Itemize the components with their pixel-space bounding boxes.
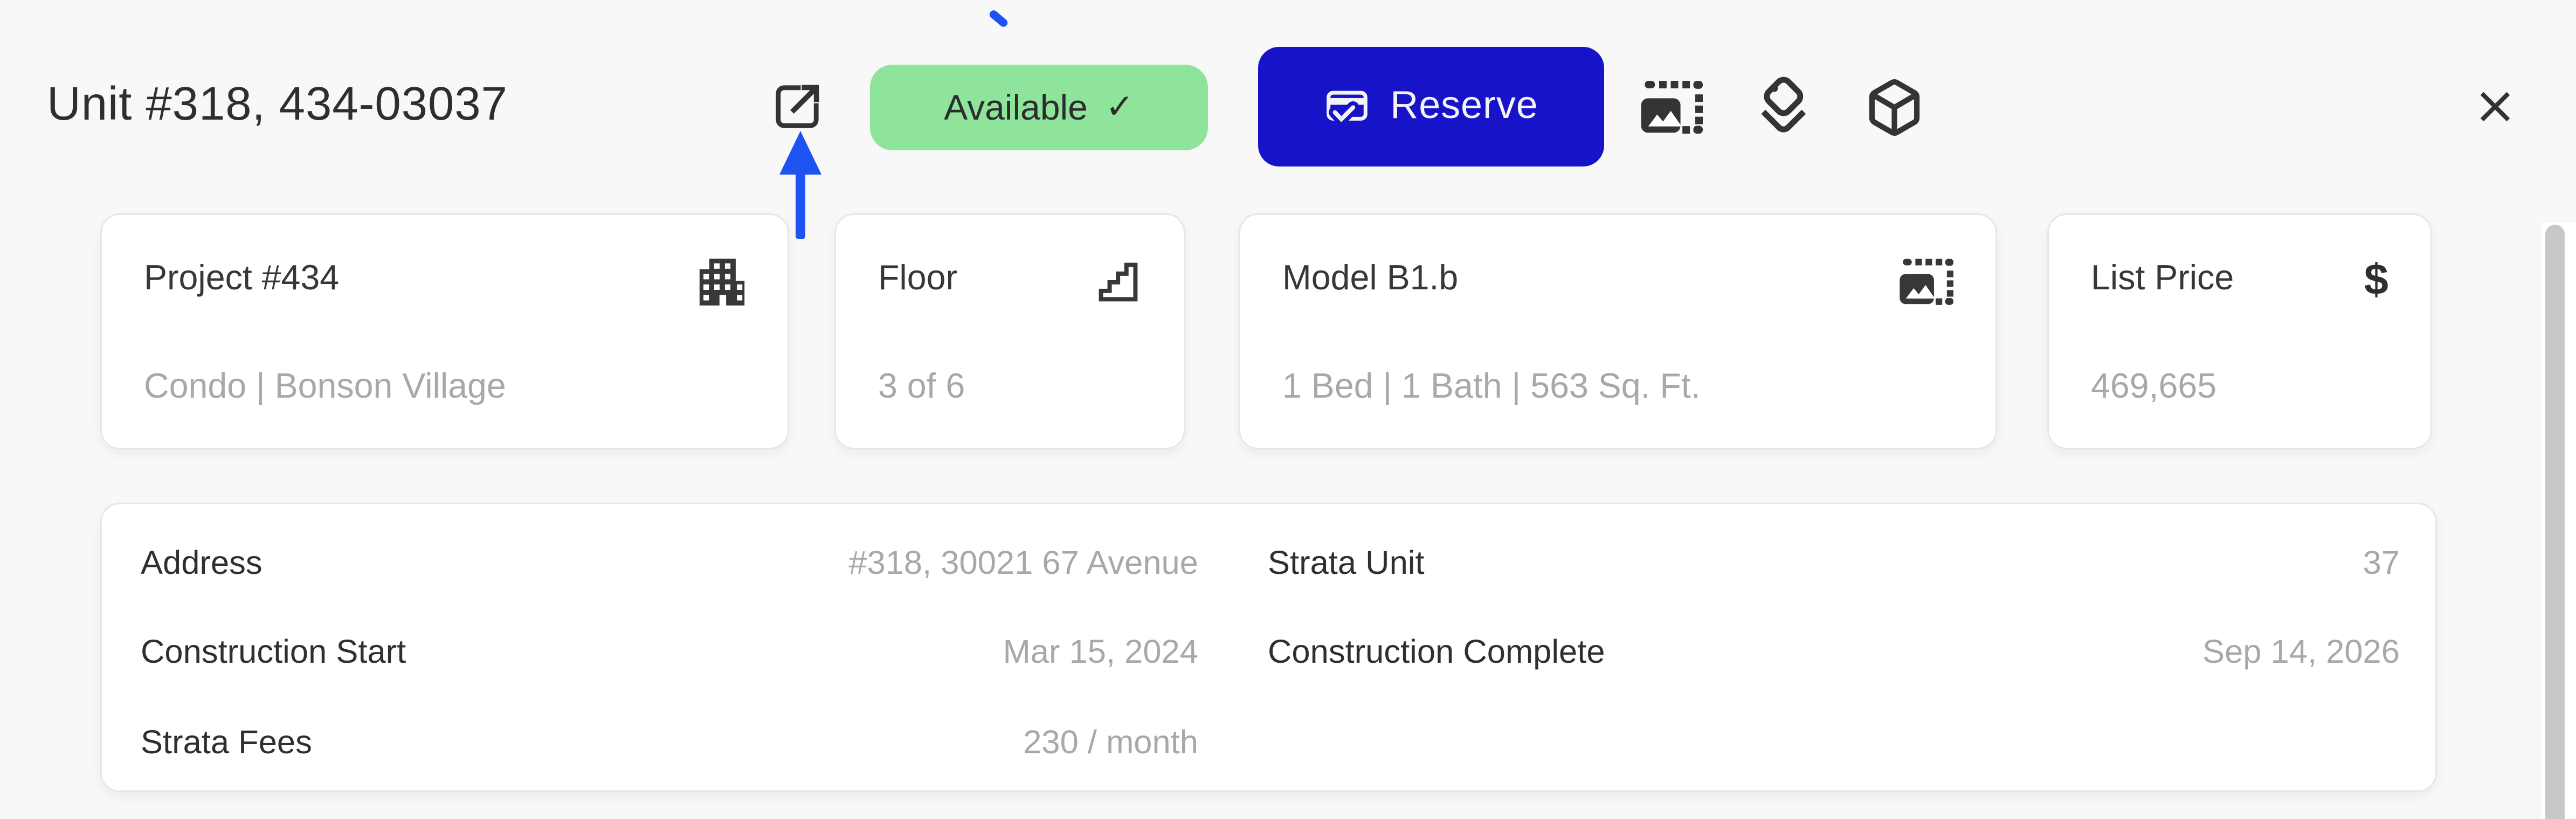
project-card: Project #434 Condo | Bonso	[100, 213, 789, 449]
detail-label: Construction Complete	[1268, 634, 1605, 673]
reserve-button-label: Reserve	[1390, 84, 1538, 129]
detail-label: Strata Unit	[1268, 544, 1425, 583]
details-left-column: Address #318, 30021 67 Avenue Constructi…	[141, 519, 1198, 788]
annotation-dash	[988, 9, 1010, 29]
detail-row-construction-start: Construction Start Mar 15, 2024	[141, 609, 1198, 699]
detail-value: 37	[2363, 544, 2400, 583]
reservation-check-icon	[1324, 84, 1369, 129]
detail-label: Address	[141, 544, 263, 583]
detail-row-construction-complete: Construction Complete Sep 14, 2026	[1268, 609, 2400, 699]
close-icon[interactable]	[2474, 86, 2516, 128]
tags-icon[interactable]	[1750, 74, 1814, 139]
status-badge-label: Available	[944, 87, 1088, 129]
dollar-icon: $	[2364, 259, 2388, 301]
model-card: Model B1.b 1 Bed | 1 Bath |	[1239, 213, 1997, 449]
model-card-subtitle: 1 Bed | 1 Bath | 563 Sq. Ft.	[1282, 367, 1953, 407]
detail-value: Sep 14, 2026	[2202, 634, 2400, 673]
unit-details-card: Address #318, 30021 67 Avenue Constructi…	[100, 503, 2437, 792]
stairs-icon	[1095, 259, 1142, 306]
detail-row-strata-unit: Strata Unit 37	[1268, 519, 2400, 609]
list-price-card-title: List Price	[2091, 259, 2234, 299]
detail-label: Strata Fees	[141, 724, 312, 762]
project-card-title: Project #434	[144, 259, 339, 299]
detail-value: Mar 15, 2024	[1003, 634, 1198, 673]
floor-card: Floor 3 of 6	[834, 213, 1185, 449]
unit-detail-panel: Unit #318, 434-03037 Available ✓ Reserve	[0, 0, 2576, 819]
list-price-card-subtitle: 469,665	[2091, 367, 2388, 407]
details-right-column: Strata Unit 37 Construction Complete Sep…	[1268, 519, 2400, 788]
project-card-subtitle: Condo | Bonson Village	[144, 367, 745, 407]
detail-row-strata-fees: Strata Fees 230 / month	[141, 698, 1198, 788]
floor-card-subtitle: 3 of 6	[878, 367, 1142, 407]
scrollbar-thumb[interactable]	[2545, 225, 2565, 819]
floor-card-title: Floor	[878, 259, 957, 299]
floorplan-image-icon	[1898, 259, 1953, 306]
detail-row-address: Address #318, 30021 67 Avenue	[141, 519, 1198, 609]
list-price-card: List Price $ 469,665	[2047, 213, 2432, 449]
status-badge: Available ✓	[870, 65, 1208, 150]
building-icon	[699, 259, 745, 306]
media-image-icon[interactable]	[1638, 74, 1703, 139]
detail-value: 230 / month	[1023, 724, 1198, 762]
reserve-button[interactable]: Reserve	[1258, 47, 1604, 166]
page-title: Unit #318, 434-03037	[47, 78, 508, 133]
detail-label: Construction Start	[141, 634, 406, 673]
cube-3d-icon[interactable]	[1861, 74, 1926, 139]
detail-value: #318, 30021 67 Avenue	[848, 544, 1198, 583]
model-card-title: Model B1.b	[1282, 259, 1458, 299]
check-icon: ✓	[1106, 87, 1134, 128]
external-link-icon[interactable]	[771, 81, 823, 133]
